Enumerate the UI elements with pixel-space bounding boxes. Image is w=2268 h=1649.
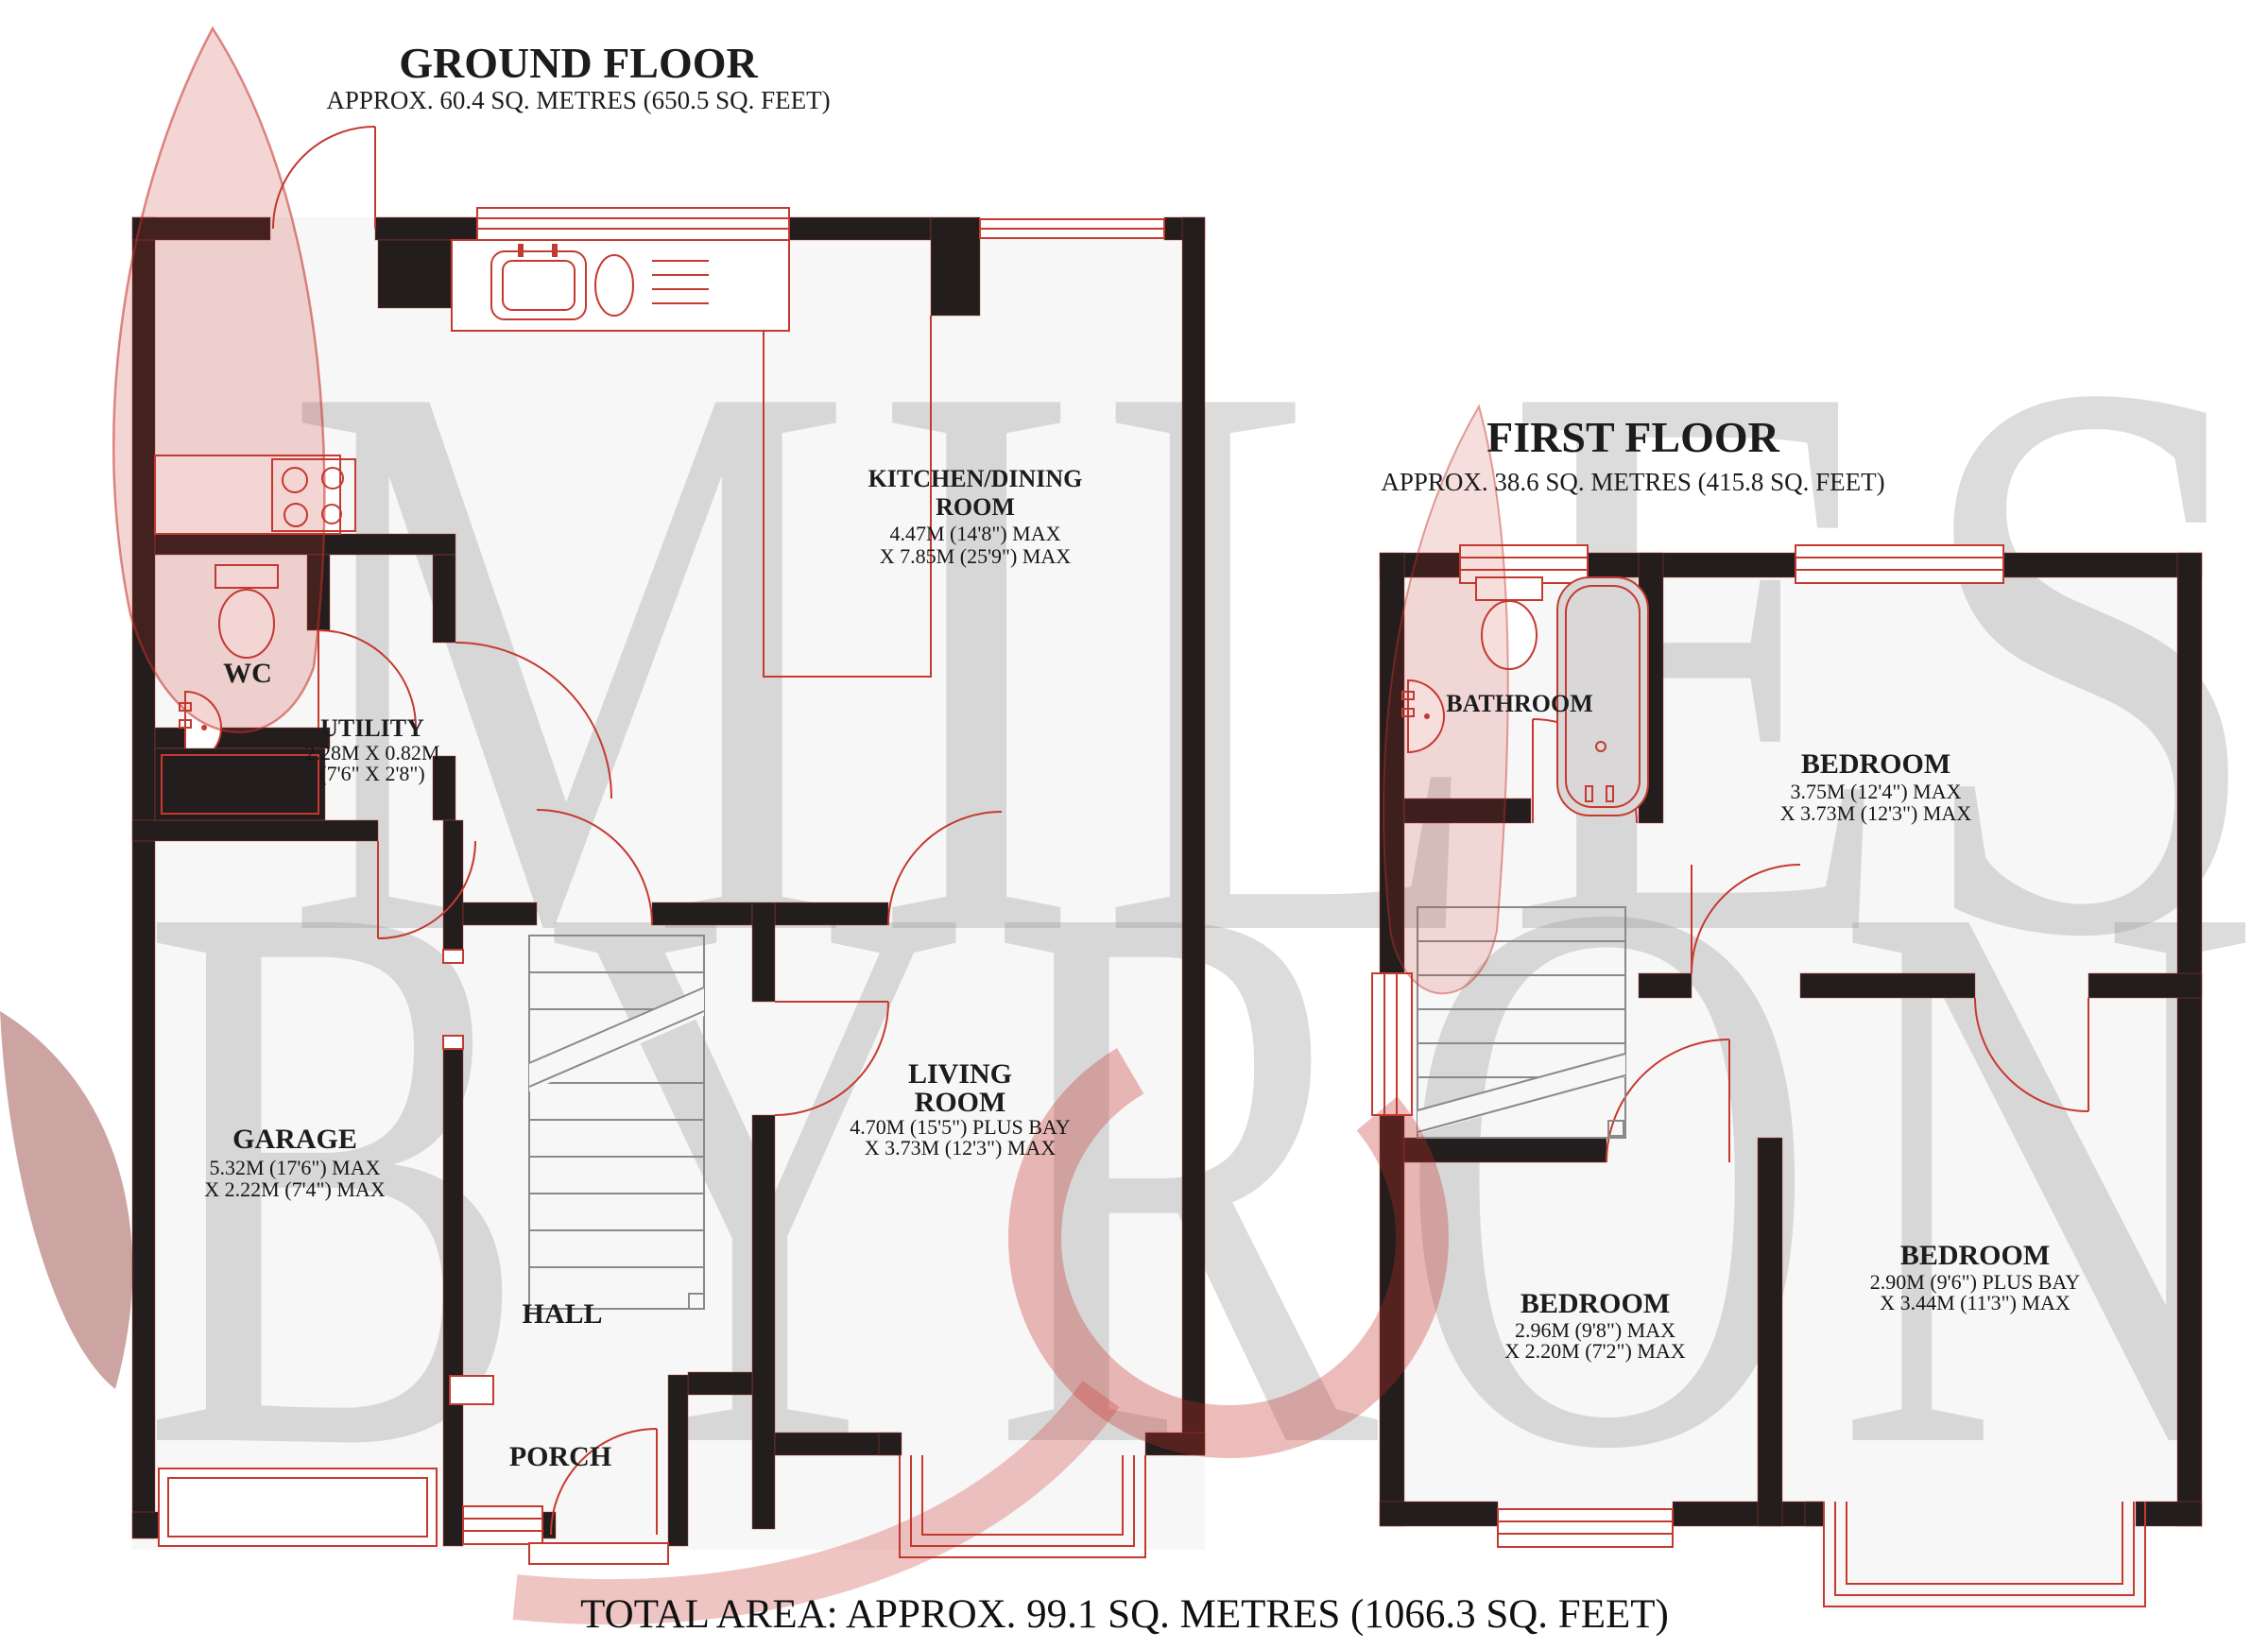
hall-label: HALL (522, 1298, 602, 1330)
ground-floor-area: APPROX. 60.4 SQ. METRES (650.5 SQ. FEET) (326, 86, 830, 114)
bathroom-label: BATHROOM (1446, 690, 1593, 717)
bedroom2-name: BEDROOM (1900, 1240, 2050, 1271)
swoosh-crescent (0, 1011, 132, 1389)
porch-label: PORCH (509, 1441, 611, 1472)
kitchen-dining-dim2: X 7.85M (25'9") MAX (880, 544, 1071, 568)
bedroom1-window (1795, 545, 2003, 583)
wc-label: WC (223, 658, 272, 689)
utility-dim2: (7'6" X 2'8") (319, 762, 424, 785)
bedroom1-dim1: 3.75M (12'4") MAX (1791, 780, 1962, 803)
bedroom3-label: BEDROOM 2.96M (9'8") MAX X 2.20M (7'2") … (1504, 1288, 1685, 1363)
bedroom1-name: BEDROOM (1801, 748, 1950, 780)
kitchen-window (477, 208, 789, 240)
kitchen-boiler-unit (378, 240, 452, 308)
garage-dim1: 5.32M (17'6") MAX (210, 1156, 381, 1179)
kitchen-dining-dim1: 4.47M (14'8") MAX (890, 522, 1061, 545)
first-floor-area: APPROX. 38.6 SQ. METRES (415.8 SQ. FEET) (1381, 468, 1884, 496)
utility-name: UTILITY (320, 714, 424, 742)
living-dim2: X 3.73M (12'3") MAX (865, 1136, 1056, 1159)
bedroom1-dim2: X 3.73M (12'3") MAX (1780, 801, 1971, 825)
garage-door (159, 1469, 437, 1546)
dining-window (980, 219, 1164, 238)
storage-cupboard (155, 748, 325, 820)
kitchen-dining-name-line2: ROOM (936, 493, 1015, 521)
porch-window (463, 1506, 542, 1544)
bedroom3-dim2: X 2.20M (7'2") MAX (1504, 1339, 1685, 1363)
living-name-line1: LIVING (908, 1058, 1012, 1090)
kitchen-dining-name-line1: KITCHEN/DINING (868, 465, 1083, 492)
garage-name: GARAGE (232, 1124, 357, 1155)
utility-label: UTILITY 2.28M X 0.82M (7'6" X 2'8") (304, 714, 439, 785)
total-area-label: TOTAL AREA: APPROX. 99.1 SQ. METRES (106… (580, 1592, 1669, 1637)
swoosh-leaf (113, 28, 324, 732)
bedroom2-label: BEDROOM 2.90M (9'6") PLUS BAY X 3.44M (1… (1870, 1240, 2080, 1314)
first-floor-title: FIRST FLOOR (1486, 413, 1779, 461)
garage-dim2: X 2.22M (7'4") MAX (204, 1177, 385, 1201)
landing-window (1372, 973, 1412, 1115)
ground-floor-title: GROUND FLOOR (399, 39, 758, 87)
bedroom3-name: BEDROOM (1521, 1288, 1670, 1319)
bedroom3-window (1498, 1509, 1673, 1547)
floorplan-drawing: MILES BYRON (0, 0, 2268, 1649)
living-name-line2: ROOM (915, 1087, 1006, 1118)
bedroom1-label: BEDROOM 3.75M (12'4") MAX X 3.73M (12'3"… (1780, 748, 1971, 825)
floorplan-page: MILES BYRON (0, 0, 2268, 1649)
bedroom2-dim2: X 3.44M (11'3") MAX (1880, 1291, 2070, 1314)
